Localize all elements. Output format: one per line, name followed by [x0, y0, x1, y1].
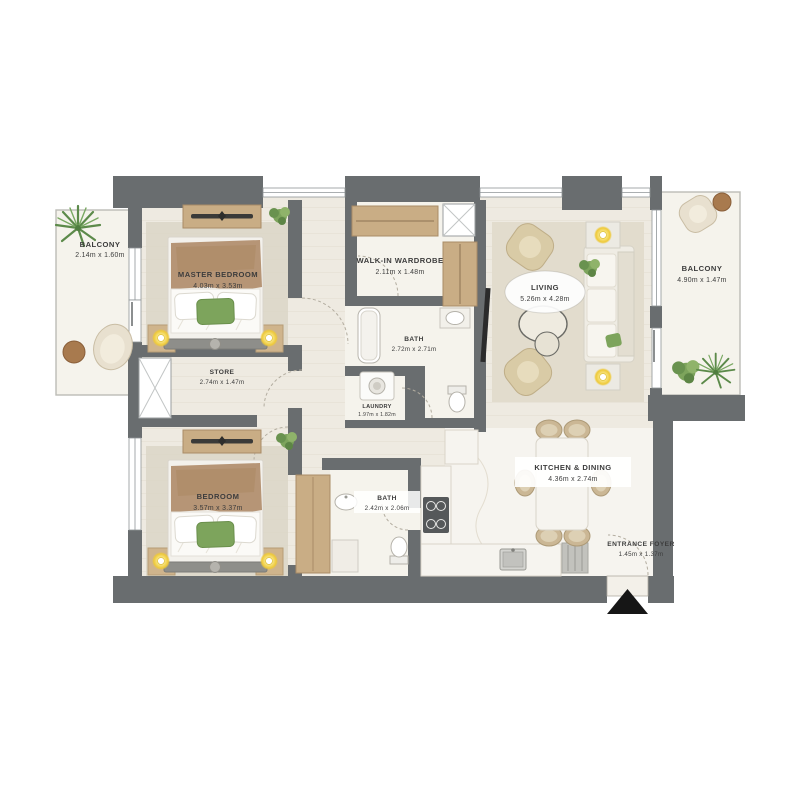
wall-segment [653, 418, 673, 603]
bathtub-icon [358, 308, 380, 363]
room-name: LAUNDRY [362, 404, 391, 410]
room-dims: 2.72m x 2.71m [392, 346, 437, 353]
room-dims: 4.36m x 2.74m [548, 476, 597, 483]
room-name: KITCHEN & DINING [534, 463, 611, 472]
wall-segment [345, 176, 480, 202]
room-dims: 4.03m x 3.53m [193, 283, 242, 290]
window [129, 248, 141, 300]
balcony-sliding-door [652, 328, 661, 388]
wall-segment [408, 530, 421, 576]
room-dims: 4.90m x 1.47m [677, 277, 726, 284]
toilet-icon [448, 386, 466, 412]
wall-segment [650, 306, 662, 328]
bed-icon [148, 237, 283, 352]
shower-icon [332, 540, 358, 572]
vanity-sink-icon [335, 494, 357, 510]
room-name: BATH [404, 336, 424, 343]
side-table-lamp [586, 364, 620, 390]
wall-segment [288, 200, 302, 298]
room-dims: 2.14m x 1.60m [75, 252, 124, 259]
door-mat-icon [562, 543, 588, 573]
room-name: ENTRANCE FOYER [607, 541, 674, 548]
dresser-icon [183, 205, 261, 228]
room-label-bath-2: BATH 2.42m x 2.06m [354, 491, 420, 513]
window [129, 438, 141, 530]
room-dims: 2.42m x 2.06m [365, 505, 410, 512]
wall-segment [322, 458, 421, 470]
room-dims: 2.11m x 1.48m [376, 269, 425, 276]
bed-icon [148, 460, 283, 575]
room-dims: 3.57m x 3.37m [193, 505, 242, 512]
window [480, 188, 562, 197]
label-background [505, 271, 585, 313]
sofa-icon [579, 246, 634, 362]
room-name: BALCONY [80, 240, 121, 249]
window [652, 210, 661, 306]
duct-shaft-icon [139, 358, 171, 418]
room-name: MASTER BEDROOM [178, 270, 258, 279]
floor-plan-page: BALCONY 2.14m x 1.60m MASTER BEDROOM 4.0… [0, 0, 800, 800]
balcony-table-icon [63, 341, 85, 363]
wall-segment [425, 418, 474, 428]
room-name: BALCONY [682, 264, 723, 273]
room-label-kitchen-dining: KITCHEN & DINING 4.36m x 2.74m [515, 457, 631, 487]
window [263, 188, 345, 197]
room-name: LIVING [531, 283, 559, 292]
dresser-icon [183, 430, 261, 453]
room-dims: 2.74m x 1.47m [200, 379, 245, 386]
vanity-sink-icon [440, 308, 470, 328]
stove-icon [423, 497, 449, 533]
room-name: STORE [210, 369, 235, 376]
wall-segment [345, 420, 407, 428]
window [622, 188, 650, 197]
room-name: BEDROOM [197, 492, 240, 501]
room-name: BATH [377, 495, 397, 502]
dining-chair-icon [564, 420, 590, 440]
wall-segment [288, 345, 302, 371]
wall-segment [405, 366, 425, 428]
room-dims: 1.45m x 1.37m [619, 551, 664, 558]
room-dims: 5.26m x 4.28m [520, 296, 569, 303]
dining-chair-icon [536, 420, 562, 440]
wall-segment [650, 176, 662, 210]
wall-segment [648, 395, 745, 421]
wall-segment [288, 408, 302, 427]
room-name: WALK-IN WARDROBE [357, 256, 444, 265]
balcony-table-icon [713, 193, 731, 211]
duct-shaft-icon [443, 204, 475, 236]
toilet-icon [390, 537, 408, 564]
room-dims: 1.97m x 1.82m [358, 412, 396, 418]
kitchen-sink-icon [500, 548, 526, 570]
floor-plan-drawing: BALCONY 2.14m x 1.60m MASTER BEDROOM 4.0… [0, 0, 800, 800]
washer-icon [360, 372, 394, 400]
wall-segment [128, 176, 142, 248]
wall-segment [113, 576, 607, 603]
room-label-living: LIVING 5.26m x 4.28m [505, 271, 585, 313]
side-table-lamp [586, 222, 620, 248]
wall-segment [562, 176, 622, 210]
